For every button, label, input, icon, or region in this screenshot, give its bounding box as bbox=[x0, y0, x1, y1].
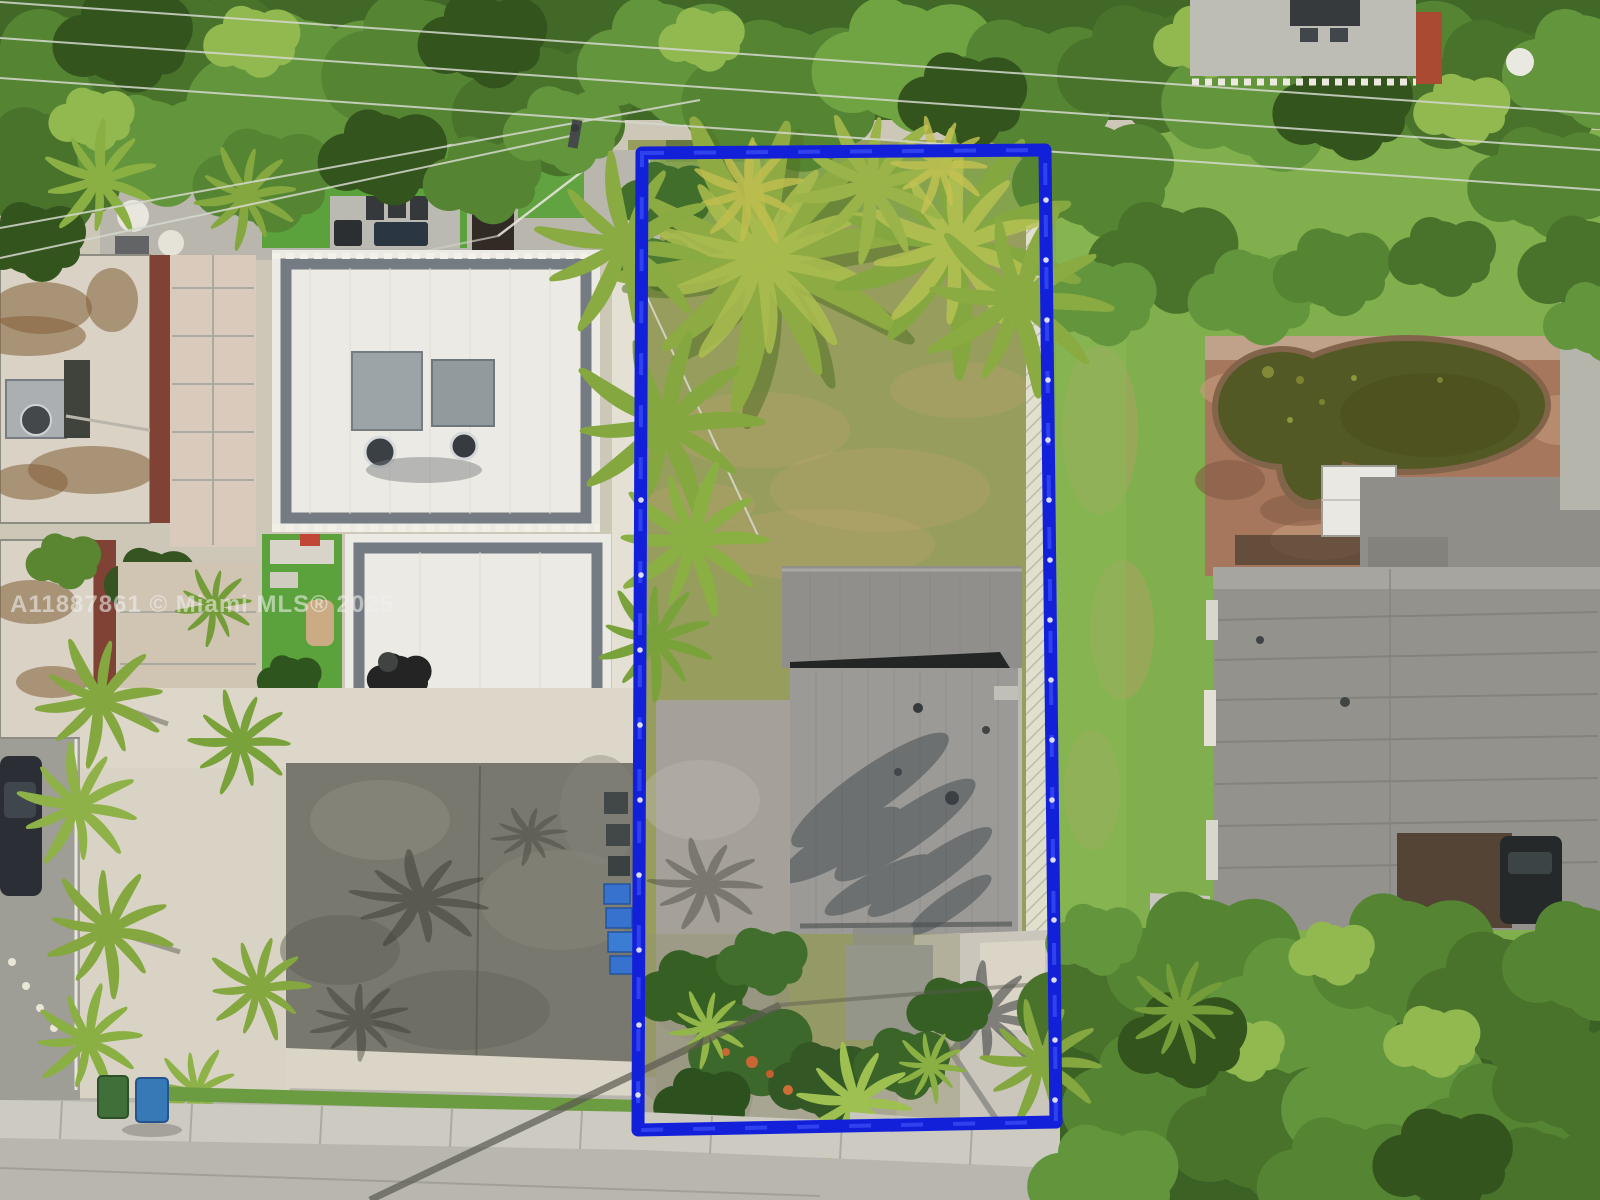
aerial-photo: A11887861 © Miami MLS® 2025 bbox=[0, 0, 1600, 1200]
aerial-photo-canvas: A11887861 © Miami MLS® 2025 bbox=[0, 0, 1600, 1200]
mls-watermark: A11887861 © Miami MLS® 2025 bbox=[10, 591, 394, 618]
